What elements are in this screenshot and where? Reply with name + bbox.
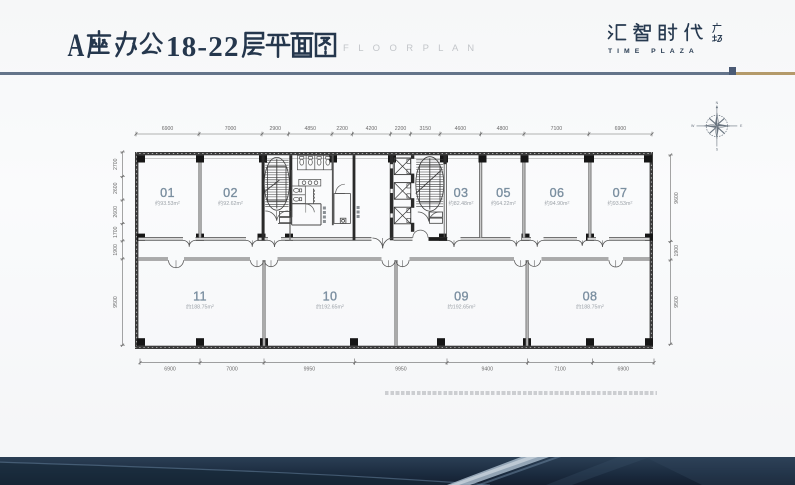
svg-text:2600: 2600 [113,206,119,218]
svg-text:02: 02 [223,186,238,200]
svg-text:约82.48m2: 约82.48m2 [448,199,473,207]
svg-text:4600: 4600 [455,126,467,132]
svg-text:4800: 4800 [497,126,509,132]
svg-text:约93.53m2: 约93.53m2 [607,199,632,207]
svg-text:约92.62m2: 约92.62m2 [218,199,243,207]
svg-text:约188.75m2: 约188.75m2 [576,303,604,311]
svg-text:06: 06 [550,186,565,200]
svg-text:7000: 7000 [226,367,238,373]
svg-text:4850: 4850 [304,126,316,132]
svg-text:11: 11 [193,290,207,304]
svg-text:6900: 6900 [615,126,627,132]
svg-text:2900: 2900 [269,126,281,132]
svg-text:S: S [716,148,719,152]
svg-text:W: W [691,124,695,128]
svg-text:约94.90m2: 约94.90m2 [544,199,569,207]
svg-text:9500: 9500 [674,296,680,308]
svg-text:9950: 9950 [395,367,407,373]
svg-text:N: N [716,101,719,105]
svg-text:1900: 1900 [113,244,119,256]
svg-text:约64.22m2: 约64.22m2 [491,199,516,207]
svg-text:4200: 4200 [366,126,378,132]
svg-text:2200: 2200 [336,126,348,132]
svg-text:01: 01 [160,186,175,200]
svg-text:3150: 3150 [419,126,431,132]
svg-text:07: 07 [613,186,628,200]
svg-text:约192.65m2: 约192.65m2 [447,303,475,311]
svg-text:08: 08 [583,290,598,304]
svg-text:6900: 6900 [162,126,174,132]
svg-text:2700: 2700 [113,158,119,170]
svg-text:约93.53m2: 约93.53m2 [155,199,180,207]
svg-text:7100: 7100 [551,126,563,132]
svg-text:1700: 1700 [113,226,119,238]
svg-text:1900: 1900 [674,245,680,257]
svg-text:7000: 7000 [225,126,237,132]
svg-text:2200: 2200 [395,126,407,132]
svg-text:9600: 9600 [674,192,680,204]
svg-text:6900: 6900 [617,367,629,373]
svg-text:7100: 7100 [554,367,566,373]
svg-text:6900: 6900 [164,367,176,373]
svg-text:9500: 9500 [113,296,119,308]
svg-text:03: 03 [454,186,469,200]
svg-text:约192.65m2: 约192.65m2 [316,303,344,311]
svg-text:10: 10 [323,290,338,304]
svg-text:9950: 9950 [304,367,316,373]
svg-text:09: 09 [454,290,469,304]
svg-text:9400: 9400 [482,367,494,373]
svg-text:E: E [740,124,743,128]
svg-text:2600: 2600 [113,182,119,194]
svg-text:约188.75m2: 约188.75m2 [186,303,214,311]
svg-text:05: 05 [496,186,511,200]
